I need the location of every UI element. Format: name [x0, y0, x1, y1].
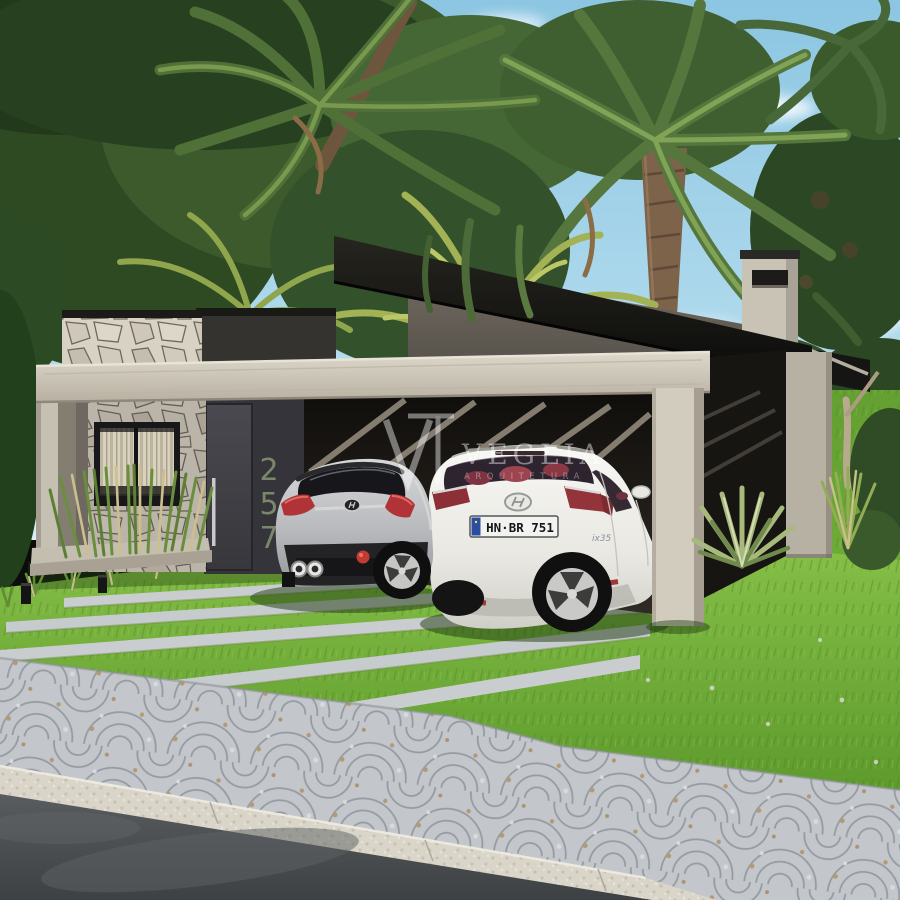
house-number: 2 5 7 — [259, 453, 278, 556]
suv-brand-logo — [505, 494, 531, 511]
right-pillar — [652, 388, 700, 626]
euro-band — [472, 518, 481, 536]
suv-mirror — [632, 486, 650, 498]
house-number-digit-2: 5 — [259, 487, 278, 522]
house-number-digit-1: 2 — [259, 453, 278, 488]
pillar-shadow — [646, 620, 710, 634]
architectural-rendering: 2 5 7 — [0, 0, 900, 900]
house-number-digit-3: 7 — [259, 521, 278, 556]
euro-stars — [475, 521, 477, 523]
license-plate: HN·BR 751 — [470, 516, 558, 537]
rendering-canvas: 2 5 7 — [0, 0, 900, 900]
rear-fog-lamp — [357, 551, 370, 564]
watermark-subtitle: ARQUITETURA — [464, 472, 585, 482]
watermark-name: VEGLIA — [461, 438, 605, 471]
hatchback-badge — [344, 499, 360, 511]
plate-text: HN·BR 751 — [486, 520, 554, 535]
window-top-shadow — [100, 428, 174, 432]
suv-model-badge: ix35 — [592, 534, 612, 544]
hatchback-wheel-left-peek — [282, 572, 295, 587]
